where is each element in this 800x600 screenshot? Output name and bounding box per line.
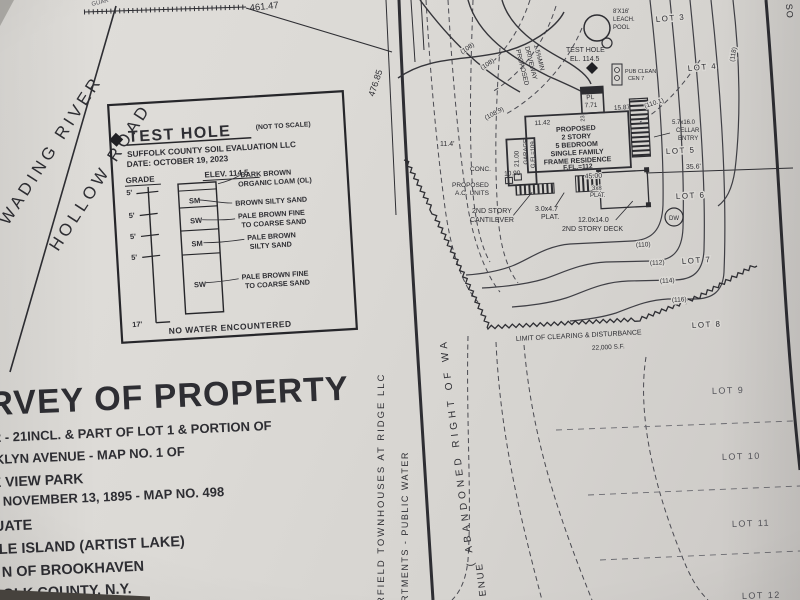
deck-label2: 2ND STORY DECK <box>562 226 623 233</box>
lot-label: LOT 9 <box>712 385 745 396</box>
drywell-label: DW <box>669 216 679 222</box>
dashed-contour <box>506 28 582 114</box>
lot-label: LOT 5 <box>666 145 696 156</box>
cantilever-label: 2ND STORY <box>472 208 512 215</box>
soil-code: SW <box>190 216 204 226</box>
lot-label: LOT 7 <box>682 255 712 266</box>
lot-line <box>588 486 800 495</box>
dashed-contour <box>448 0 500 292</box>
soil-code: SW <box>194 280 208 290</box>
west-dim: 476.85 <box>366 68 384 97</box>
lot5-dim: 35.6' <box>686 163 701 171</box>
guard-partial-label: GUAR <box>91 0 110 8</box>
ac-units-label2: A.C. UNITS <box>455 190 490 197</box>
apartments-note: RTMENTS - PUBLIC WATER <box>400 451 410 600</box>
depth-bottom-tick <box>156 322 170 323</box>
abandoned-row-label: ( ABANDONED RIGHT OF WA <box>438 338 477 567</box>
lot-label: LOT 8 <box>692 319 722 330</box>
leaching-pool-symbol <box>584 15 610 41</box>
contour-label: (116) <box>672 296 687 304</box>
depth-tick <box>142 255 160 257</box>
west-road-line <box>386 0 396 215</box>
contour-label: (108) <box>479 58 496 72</box>
dim-1142: 11.42 <box>534 119 551 127</box>
site-annotations: 8'X16' LEACH. POOL TEST HOLE EL. 114.5 P… <box>440 9 700 352</box>
corner-street-label: SO <box>784 3 795 19</box>
clearing-area-label: 22,000 S.F. <box>592 343 625 352</box>
hatched-boundary-core <box>84 7 246 12</box>
title-line: KLYN AVENUE - MAP NO. 1 OF <box>0 444 185 467</box>
lot-label: LOT 6 <box>676 190 706 201</box>
dashed-contour <box>496 342 542 600</box>
lot-label: LOT 10 <box>722 451 761 462</box>
title-line: E VIEW PARK <box>0 470 84 490</box>
margin-notes: RFIELD TOWNHOUSES AT RIDGE LLC RTMENTS -… <box>376 338 489 600</box>
depth-label: 5' <box>130 232 137 241</box>
dashed-contour <box>524 345 592 600</box>
layer-divider <box>182 253 220 255</box>
contour-label: (108.9) <box>484 106 505 122</box>
test-hole-site-label: TEST HOLE <box>566 47 605 54</box>
plat3x8-label2: PLAT. <box>590 193 606 199</box>
grade-label: GRADE <box>125 174 155 185</box>
layer-divider <box>178 189 216 191</box>
soil-desc: SILTY SAND <box>250 240 293 251</box>
leach-label: 8'X16' <box>613 9 629 15</box>
avenue-label: ENUE <box>474 561 489 596</box>
driveway-curve <box>502 0 591 84</box>
entry-steps <box>516 183 554 195</box>
title-line: OLK COUNTY, N.Y. <box>2 581 131 600</box>
lot-lines <box>556 421 800 560</box>
title-block: RVEY OF PROPERTY 2 - 21INCL. & PART OF L… <box>0 370 357 600</box>
dim-2100: 21.00 <box>514 150 521 167</box>
plat-label2: PLAT. <box>541 214 559 221</box>
contour-118-line <box>718 0 739 206</box>
dim-114: 11.4' <box>440 141 454 148</box>
contour-label: (118) <box>729 47 738 63</box>
title-line: LE ISLAND (ARTIST LAKE) <box>0 534 185 558</box>
dim-1587: 15.87 <box>614 104 631 112</box>
test-hole-elev-label: EL. 114.5 <box>570 56 600 63</box>
lot-line <box>600 551 800 560</box>
leader-line <box>615 201 634 220</box>
driveway-curves <box>398 0 591 94</box>
leader-line <box>203 239 244 243</box>
deck-post <box>646 202 651 207</box>
ffl-label: F.FL.=112 <box>563 163 593 172</box>
cantilever-label2: CANTILEVER <box>470 217 514 224</box>
depth-tick <box>140 213 158 215</box>
pub-clean-label2: CEN 7 <box>628 76 644 82</box>
conc-label: CONC. <box>470 166 491 173</box>
test-hole-box: TEST HOLE (NOT TO SCALE) SUFFOLK COUNTY … <box>107 91 357 343</box>
cellar-label: 5.7x16.0 <box>672 120 696 126</box>
depth-label: 5' <box>126 188 133 197</box>
contour-label: (110) <box>636 241 651 249</box>
depth-tick <box>141 234 159 236</box>
depth-label: 5' <box>131 253 138 262</box>
garage-floor-label: G.FL=109 <box>530 141 536 169</box>
survey-drawing: PROPOSED 2 STORY 5 BEDROOM SINGLE FAMILY… <box>0 0 800 600</box>
proposed-house: PROPOSED 2 STORY 5 BEDROOM SINGLE FAMILY… <box>500 84 654 226</box>
garage-label: GARAGE <box>523 139 529 165</box>
septic-port <box>615 68 620 73</box>
lot5-lot6-line <box>646 168 793 173</box>
contour-label: (114) <box>660 277 675 285</box>
depth-scale-line <box>148 187 156 323</box>
survey-title: RVEY OF PROPERTY <box>0 370 350 424</box>
pl-label: PL <box>586 94 595 101</box>
dim-1090: 10.90 <box>504 170 521 178</box>
ac-units-label: PROPOSED <box>452 182 489 189</box>
leader-line <box>512 192 533 215</box>
deck-post <box>644 167 649 172</box>
leach-label: POOL <box>613 25 630 31</box>
road-line-b <box>421 0 424 50</box>
dim-771: 7.71 <box>585 102 598 110</box>
septic-port <box>615 76 620 81</box>
soil-desc: BROWN SILTY SAND <box>235 195 307 208</box>
test-hole-diamond-icon <box>586 62 598 74</box>
east-thick-boundary <box>766 0 800 470</box>
leader-line <box>554 193 565 208</box>
plat3x8-label: 3x8 <box>592 186 602 192</box>
pub-clean-label: PUB CLEAN <box>625 69 656 75</box>
plat-label: 3.0x4.7 <box>535 206 558 213</box>
north-dim: 461.47 <box>249 0 279 14</box>
dashed-contour <box>644 357 708 600</box>
layer-divider <box>181 229 219 231</box>
contour-label: (112) <box>650 259 665 267</box>
deck-label: 12.0x14.0 <box>578 217 609 224</box>
soil-code: SM <box>189 196 201 206</box>
title-line: 2 - 21INCL. & PART OF LOT 1 & PORTION OF <box>0 418 272 445</box>
lot-label: LOT 12 <box>742 590 781 600</box>
lot-label: LOT 3 <box>655 12 685 24</box>
bottom-depth-label: 17' <box>132 320 143 330</box>
leach-label: LEACH. <box>613 17 635 23</box>
title-line: UATE <box>0 517 33 535</box>
leader-line <box>199 198 232 205</box>
depth-label: 5' <box>128 211 135 220</box>
clearing-limit-label: LIMIT OF CLEARING & DISTURBANCE <box>516 329 642 343</box>
townhouses-note: RFIELD TOWNHOUSES AT RIDGE LLC <box>376 373 387 600</box>
lot-label: LOT 4 <box>687 61 717 73</box>
north-boundary <box>246 8 392 52</box>
lot-label: LOT 11 <box>732 518 771 529</box>
dim-23: 23 <box>580 115 586 121</box>
cellar-label2: CELLAR <box>676 128 700 134</box>
deck-outline <box>599 170 649 208</box>
cellar-label3: ENTRY <box>678 136 698 142</box>
survey-photo: PROPOSED 2 STORY 5 BEDROOM SINGLE FAMILY… <box>0 0 800 600</box>
dim-45: 45.00 <box>584 173 602 181</box>
lot-line <box>556 421 793 430</box>
title-line: N OF BROOKHAVEN <box>2 559 145 581</box>
not-to-scale-label: (NOT TO SCALE) <box>256 121 311 131</box>
layer-divider <box>179 206 217 208</box>
depth-tick <box>136 191 158 193</box>
road-line-a <box>411 0 415 62</box>
soil-code: SM <box>191 239 203 249</box>
